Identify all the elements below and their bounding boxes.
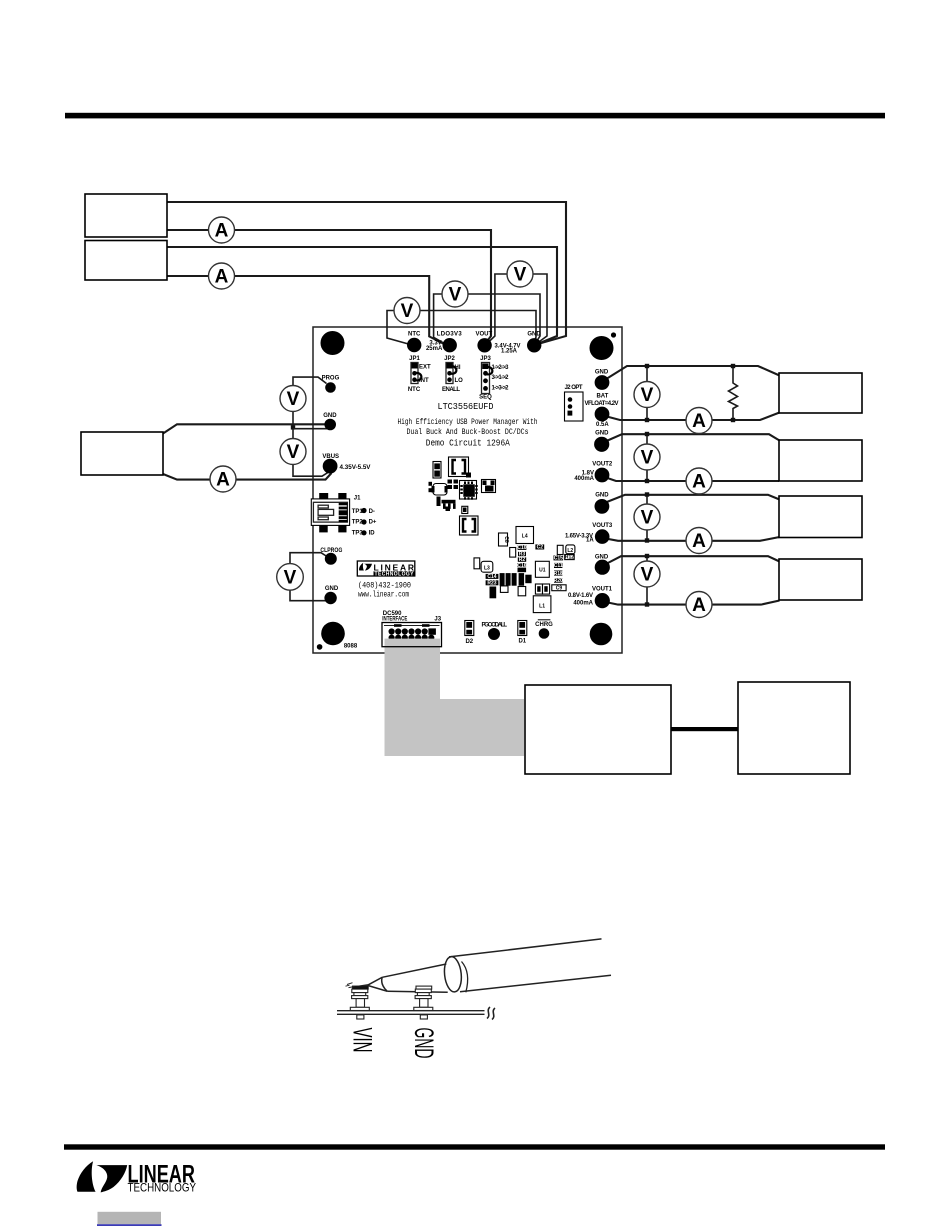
svg-text:D1: D1 — [518, 639, 526, 645]
svg-text:JP1: JP1 — [409, 356, 420, 362]
svg-text:1->3->2: 1->3->2 — [492, 386, 510, 392]
svg-text:TECHNOLOGY: TECHNOLOGY — [128, 1181, 197, 1195]
svg-text:GND: GND — [325, 586, 339, 592]
svg-text:L4: L4 — [522, 534, 528, 540]
svg-text:GND: GND — [595, 431, 609, 437]
svg-text:High Efficiency USB Power Mana: High Efficiency USB Power Manager With — [398, 419, 538, 427]
svg-text:LO: LO — [455, 378, 464, 384]
svg-text:C2: C2 — [537, 545, 544, 551]
svg-text:ID: ID — [369, 531, 376, 537]
svg-text:V: V — [449, 285, 462, 306]
svg-text:C10: C10 — [517, 545, 526, 551]
svg-text:4.35V-5.5V: 4.35V-5.5V — [340, 465, 371, 471]
svg-text:GND: GND — [595, 493, 609, 499]
svg-text:J2 OPT: J2 OPT — [565, 385, 583, 391]
svg-text:J1: J1 — [354, 496, 361, 502]
svg-text:BAT: BAT — [596, 393, 608, 399]
svg-text:1.25A: 1.25A — [501, 348, 518, 354]
svg-text:D2: D2 — [465, 639, 473, 645]
svg-text:C11: C11 — [554, 563, 563, 569]
svg-text:VOUT3: VOUT3 — [592, 523, 613, 529]
svg-text:GND: GND — [323, 413, 337, 419]
svg-text:VOUT1: VOUT1 — [592, 587, 613, 593]
svg-text:R23: R23 — [487, 581, 496, 587]
svg-text:CLPROG: CLPROG — [320, 548, 342, 554]
svg-text:A: A — [692, 472, 706, 493]
svg-text:GND: GND — [409, 1028, 439, 1059]
svg-text:L2: L2 — [567, 548, 573, 554]
svg-text:8088: 8088 — [344, 644, 358, 650]
svg-text:GND: GND — [595, 370, 609, 376]
svg-text:0.8V-1.6V: 0.8V-1.6V — [568, 593, 593, 599]
svg-text:A: A — [215, 267, 229, 288]
svg-text:R18: R18 — [554, 571, 563, 577]
svg-text:R20: R20 — [554, 578, 563, 584]
svg-text:(408)432-1900: (408)432-1900 — [358, 581, 411, 591]
svg-text:J3: J3 — [434, 617, 441, 623]
svg-text:CHRG: CHRG — [535, 622, 553, 628]
svg-text:A: A — [692, 531, 706, 552]
svg-text:D+: D+ — [369, 520, 377, 526]
svg-text:Demo Circuit 1296A: Demo Circuit 1296A — [426, 437, 510, 448]
svg-text:Dual Buck And Buck-Boost DC/DC: Dual Buck And Buck-Boost DC/DCs — [407, 429, 529, 437]
svg-text:1->2->3: 1->2->3 — [492, 365, 510, 371]
svg-text:V: V — [287, 442, 300, 463]
svg-text:VOUT2: VOUT2 — [592, 461, 613, 467]
svg-text:R12: R12 — [565, 555, 574, 561]
svg-text:V: V — [287, 389, 300, 410]
svg-text:D-: D- — [369, 509, 375, 515]
svg-text:C8: C8 — [503, 536, 509, 543]
svg-text:V: V — [284, 568, 297, 589]
svg-text:TECHNOLOGY: TECHNOLOGY — [375, 571, 415, 577]
svg-text:V: V — [641, 565, 654, 586]
svg-text:JP3: JP3 — [480, 356, 491, 362]
svg-text:3->1->2: 3->1->2 — [492, 375, 510, 381]
svg-text:U1: U1 — [539, 568, 546, 574]
svg-text:V: V — [641, 508, 654, 529]
svg-text:A: A — [215, 221, 229, 242]
svg-text:EXT: EXT — [419, 365, 431, 371]
svg-text:PGOODALL: PGOODALL — [482, 622, 508, 628]
svg-text:GND: GND — [595, 555, 609, 561]
svg-text:SEQ: SEQ — [479, 394, 492, 400]
svg-text:LDO3V3: LDO3V3 — [437, 332, 463, 338]
svg-text:GND: GND — [527, 332, 541, 338]
svg-text:25mA: 25mA — [426, 346, 443, 352]
svg-text:A: A — [692, 411, 706, 432]
svg-text:V: V — [401, 301, 414, 322]
svg-text:L3: L3 — [484, 565, 490, 571]
svg-text:VFLOAT=4.2V: VFLOAT=4.2V — [585, 401, 619, 407]
svg-text:JP2: JP2 — [444, 356, 455, 362]
svg-text:C14: C14 — [487, 574, 496, 580]
svg-text:C9: C9 — [556, 586, 563, 592]
svg-text:VIN: VIN — [348, 1028, 378, 1053]
svg-text:INT: INT — [419, 378, 429, 384]
svg-text:VOUT: VOUT — [475, 332, 492, 338]
svg-text:www.linear.com: www.linear.com — [358, 590, 409, 599]
svg-text:L1: L1 — [539, 604, 545, 610]
svg-text:HI: HI — [455, 365, 461, 371]
svg-text:V: V — [514, 265, 527, 286]
svg-text:400mA: 400mA — [574, 476, 594, 482]
svg-text:ENALL: ENALL — [442, 387, 460, 393]
svg-text:1A: 1A — [586, 538, 594, 544]
svg-text:NTC: NTC — [408, 387, 421, 393]
svg-text:A: A — [692, 595, 706, 616]
svg-text:C15: C15 — [554, 556, 563, 562]
svg-text:A: A — [216, 470, 230, 491]
svg-text:400mA: 400mA — [573, 601, 593, 607]
svg-text:VBUS: VBUS — [322, 454, 339, 460]
svg-text:LTC3556EUFD: LTC3556EUFD — [438, 401, 494, 412]
svg-text:NTC: NTC — [408, 332, 421, 338]
svg-text:V: V — [641, 448, 654, 469]
svg-text:V: V — [641, 385, 654, 406]
svg-text:INTERFACE: INTERFACE — [382, 617, 407, 623]
svg-text:0.5A: 0.5A — [596, 422, 609, 428]
svg-text:PROG: PROG — [322, 376, 340, 382]
svg-text:C16: C16 — [517, 563, 526, 569]
